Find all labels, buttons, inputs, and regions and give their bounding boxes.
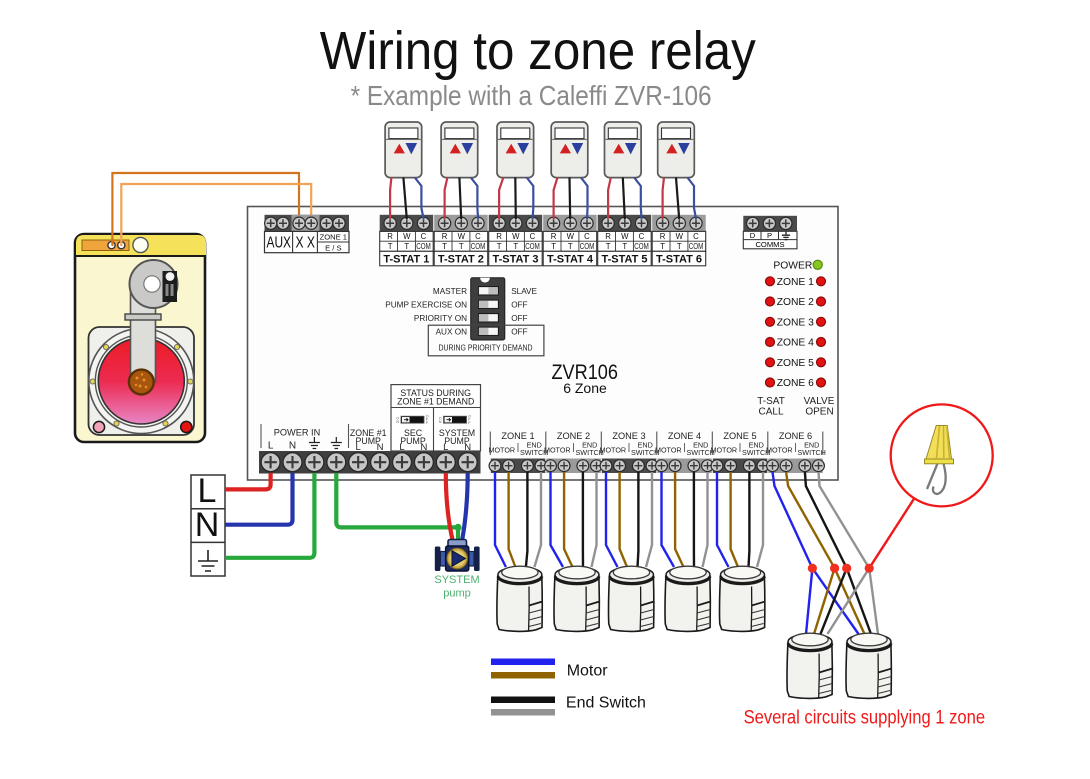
svg-text:SYSTEM: SYSTEM <box>434 574 479 586</box>
svg-text:ZONE 6: ZONE 6 <box>779 431 812 441</box>
svg-text:MOTOR: MOTOR <box>766 446 793 455</box>
svg-text:ZONE 3: ZONE 3 <box>777 318 814 329</box>
svg-text:ZONE 4: ZONE 4 <box>777 338 814 349</box>
svg-text:ZONE 6: ZONE 6 <box>777 378 814 389</box>
svg-text:ZONE 3: ZONE 3 <box>612 431 645 441</box>
svg-text:6 Zone: 6 Zone <box>563 380 607 396</box>
svg-text:T: T <box>513 242 518 251</box>
svg-text:X X: X X <box>296 235 316 252</box>
svg-text:ZONE 5: ZONE 5 <box>723 431 756 441</box>
svg-text:OPEN: OPEN <box>805 407 833 418</box>
svg-text:OFF: OFF <box>511 314 527 323</box>
svg-text:P: P <box>767 231 772 240</box>
svg-text:MOTOR: MOTOR <box>488 446 515 455</box>
svg-text:OFF: OFF <box>511 300 527 309</box>
svg-text:SWITCH: SWITCH <box>798 448 826 457</box>
svg-text:COMMS: COMMS <box>755 240 784 249</box>
svg-text:ZONE 5: ZONE 5 <box>777 358 814 369</box>
svg-text:L: L <box>198 472 217 510</box>
svg-text:DURING PRIORITY DEMAND: DURING PRIORITY DEMAND <box>439 343 533 352</box>
svg-text:R: R <box>660 232 666 241</box>
svg-text:OFF: OFF <box>511 327 527 336</box>
svg-text:R: R <box>387 232 393 241</box>
svg-text:N: N <box>195 506 220 544</box>
svg-text:N: N <box>439 420 442 424</box>
svg-text:Several circuits supplying 1 z: Several circuits supplying 1 zone <box>744 707 986 729</box>
svg-text:AUX: AUX <box>267 235 292 252</box>
svg-text:T: T <box>660 242 665 251</box>
svg-text:T: T <box>404 242 409 251</box>
svg-text:COM: COM <box>416 242 431 251</box>
svg-text:MOTOR: MOTOR <box>655 446 682 455</box>
svg-text:MOTOR: MOTOR <box>599 446 626 455</box>
svg-text:C: C <box>693 232 699 241</box>
svg-text:ZONE #1 DEMAND: ZONE #1 DEMAND <box>397 396 474 406</box>
svg-text:PUMP EXERCISE ON: PUMP EXERCISE ON <box>385 300 467 309</box>
svg-text:T: T <box>622 242 627 251</box>
svg-text:T-STAT 2: T-STAT 2 <box>438 253 484 265</box>
svg-text:W: W <box>512 232 520 241</box>
svg-text:W: W <box>567 232 575 241</box>
svg-text:VALVE: VALVE <box>804 396 835 407</box>
svg-text:R: R <box>496 232 502 241</box>
svg-text:C: C <box>584 232 590 241</box>
svg-text:COM: COM <box>525 242 540 251</box>
svg-text:L: L <box>268 441 274 452</box>
svg-text:R: R <box>442 232 448 241</box>
svg-text:W: W <box>676 232 684 241</box>
svg-text:E / S: E / S <box>325 243 341 252</box>
svg-text:* Example with a Caleffi ZVR-1: * Example with a Caleffi ZVR-106 <box>351 80 712 111</box>
svg-text:SLAVE: SLAVE <box>511 287 537 296</box>
svg-text:MASTER: MASTER <box>433 287 467 296</box>
svg-text:AUX ON: AUX ON <box>436 327 467 336</box>
svg-text:MOTOR: MOTOR <box>544 446 571 455</box>
svg-text:C: C <box>475 232 481 241</box>
svg-text:W: W <box>403 232 411 241</box>
svg-text:R: R <box>551 232 557 241</box>
svg-text:ZONE 1: ZONE 1 <box>777 277 814 288</box>
svg-text:Motor: Motor <box>567 663 609 680</box>
svg-text:T: T <box>677 242 682 251</box>
svg-text:W: W <box>458 232 466 241</box>
svg-text:C: C <box>421 232 427 241</box>
svg-text:ZONE 1: ZONE 1 <box>320 233 347 242</box>
svg-text:T: T <box>442 242 447 251</box>
svg-text:T-SAT: T-SAT <box>757 396 785 407</box>
svg-text:C: C <box>530 232 536 241</box>
svg-text:T-STAT 1: T-STAT 1 <box>383 253 429 265</box>
svg-text:ZONE 1: ZONE 1 <box>501 431 534 441</box>
svg-text:C: C <box>639 232 645 241</box>
svg-text:POWER: POWER <box>773 261 812 272</box>
svg-text:COM: COM <box>580 242 595 251</box>
svg-text:T: T <box>388 242 393 251</box>
svg-text:PRIORITY ON: PRIORITY ON <box>414 314 467 323</box>
svg-text:COM: COM <box>471 242 486 251</box>
svg-text:T: T <box>497 242 502 251</box>
svg-text:COM: COM <box>689 242 704 251</box>
svg-text:T: T <box>459 242 464 251</box>
svg-text:T-STAT 4: T-STAT 4 <box>547 253 593 265</box>
svg-text:T-STAT 5: T-STAT 5 <box>602 253 648 265</box>
svg-text:CALL: CALL <box>758 407 783 418</box>
svg-text:ZONE 2: ZONE 2 <box>777 297 814 308</box>
svg-text:N: N <box>289 441 296 452</box>
svg-text:T: T <box>606 242 611 251</box>
svg-text:Wiring to zone relay: Wiring to zone relay <box>320 21 756 81</box>
svg-text:POWER IN: POWER IN <box>274 428 320 438</box>
svg-text:T: T <box>568 242 573 251</box>
svg-text:End Switch: End Switch <box>566 695 646 712</box>
svg-text:T-STAT 3: T-STAT 3 <box>493 253 539 265</box>
svg-text:N: N <box>396 420 399 424</box>
svg-text:T-STAT 6: T-STAT 6 <box>656 253 702 265</box>
svg-text:COM: COM <box>634 242 649 251</box>
svg-text:W: W <box>621 232 629 241</box>
svg-text:R: R <box>605 232 611 241</box>
svg-text:T: T <box>551 242 556 251</box>
svg-text:ZONE 2: ZONE 2 <box>557 431 590 441</box>
svg-text:D: D <box>750 231 756 240</box>
svg-text:MOTOR: MOTOR <box>710 446 737 455</box>
svg-text:pump: pump <box>443 588 471 600</box>
svg-text:ZONE 4: ZONE 4 <box>668 431 701 441</box>
